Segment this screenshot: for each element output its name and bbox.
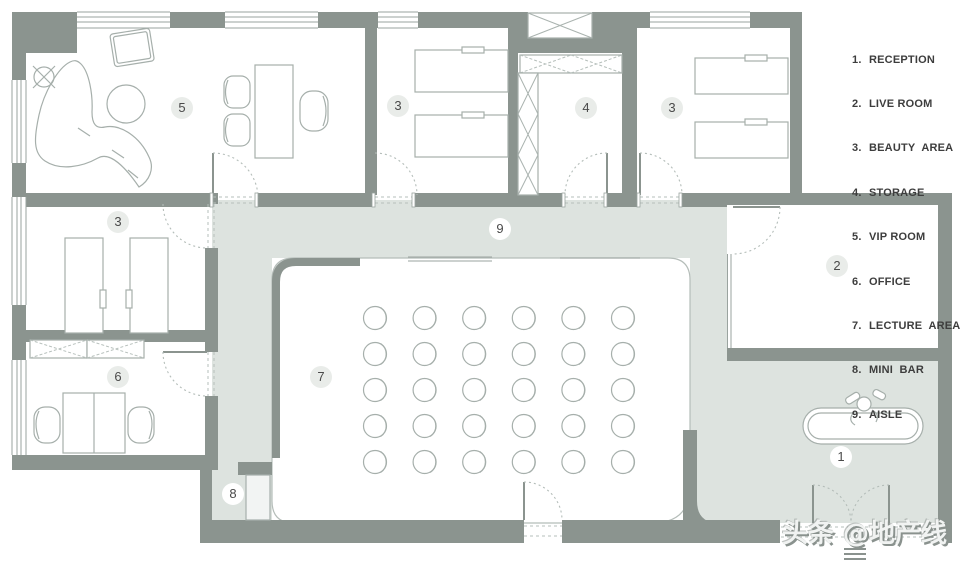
legend-item: 9.AISLE [852, 408, 960, 423]
vip-room-door [213, 153, 258, 203]
vip-chair-2 [224, 114, 250, 146]
office-furniture [30, 340, 154, 453]
legend-item: 4.STORAGE [852, 186, 960, 201]
legend-item: 1.RECEPTION [852, 53, 960, 68]
room-badge-beauty-left: 3 [107, 211, 129, 233]
beauty-middle-beds [415, 47, 508, 157]
room-badge-live-room: 2 [826, 255, 848, 277]
room-badge-beauty-right: 3 [661, 97, 683, 119]
live-room-partition [728, 254, 732, 348]
legend-item: 8.MINI BAR [852, 363, 960, 378]
room-badge-reception: 1 [830, 446, 852, 468]
minibar-counter [246, 475, 270, 520]
vip-chair-1 [224, 76, 250, 108]
beauty-right-beds [695, 55, 788, 158]
floor-plan-drawing [0, 0, 960, 564]
vip-side-chair [300, 91, 328, 131]
office-door [163, 352, 214, 396]
window-top-1 [77, 12, 170, 28]
legend-item: 5.VIP ROOM [852, 230, 960, 245]
beauty-middle-door [375, 153, 417, 203]
watermark-seal-icon [844, 548, 866, 562]
room-badge-beauty-middle: 3 [387, 95, 409, 117]
coffee-table [107, 85, 145, 123]
window-left-2 [12, 197, 26, 305]
legend-item: 6.OFFICE [852, 275, 960, 290]
window-top-2 [225, 12, 318, 28]
legend-item: 7.LECTURE AREA [852, 319, 960, 334]
live-room-door [733, 207, 780, 254]
room-badge-storage: 4 [575, 97, 597, 119]
ceiling-symbol [33, 66, 55, 88]
legend-item: 3.BEAUTY AREA [852, 141, 960, 156]
beauty-left-beds [65, 238, 168, 333]
beauty-right-door [640, 153, 682, 203]
office-chair-left [34, 407, 60, 443]
room-badge-vip-room: 5 [171, 97, 193, 119]
vip-desk [255, 65, 293, 158]
legend-item: 2.LIVE ROOM [852, 97, 960, 112]
watermark-text: 头条 @地产线 [782, 513, 960, 550]
beauty-left-door [163, 204, 214, 248]
legend: 1.RECEPTION 2.LIVE ROOM 3.BEAUTY AREA 4.… [852, 23, 960, 452]
window-top-4 [650, 12, 750, 28]
storage-door [565, 153, 607, 203]
window-left-1 [12, 80, 26, 163]
room-badge-aisle: 9 [489, 218, 511, 240]
organic-sofa [35, 61, 151, 187]
floor-plan: 5 3 4 3 3 6 9 7 2 1 8 1.RECEPTION 2.LIVE… [0, 0, 960, 564]
duct-box [528, 13, 592, 38]
office-chair-right [128, 407, 154, 443]
window-left-3 [12, 360, 26, 455]
room-badge-lecture-area: 7 [310, 366, 332, 388]
room-badge-office: 6 [107, 366, 129, 388]
rug [110, 28, 155, 67]
window-top-3 [378, 12, 418, 28]
room-badge-mini-bar: 8 [222, 483, 244, 505]
